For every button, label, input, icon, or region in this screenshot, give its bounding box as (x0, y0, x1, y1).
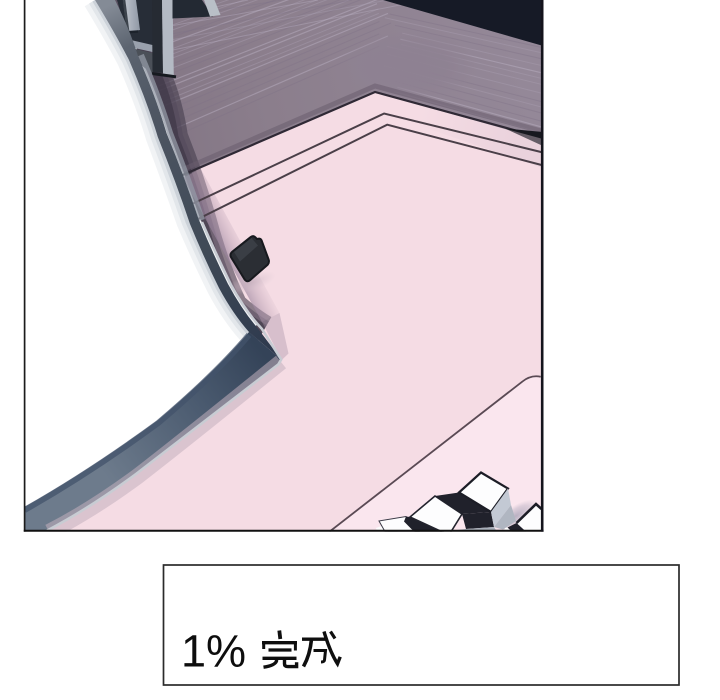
svg-text:1%: 1% (181, 626, 246, 677)
